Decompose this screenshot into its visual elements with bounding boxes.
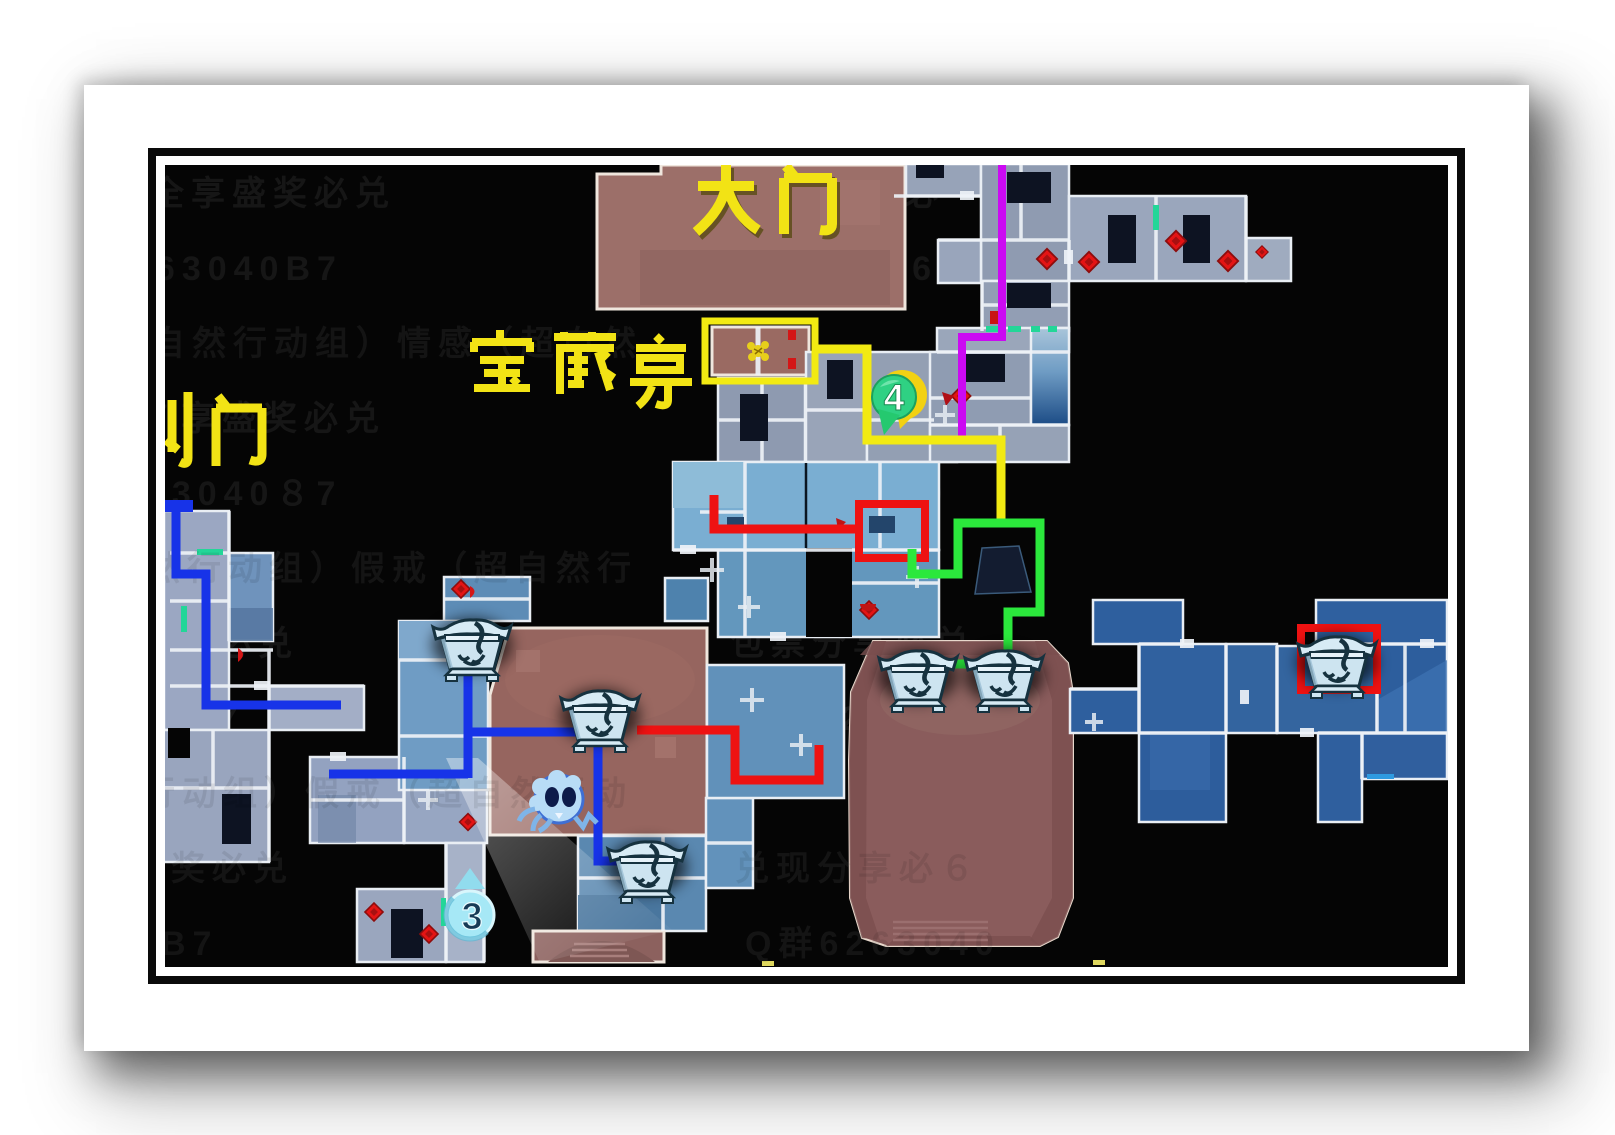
svg-text:０B7: ０B7 bbox=[165, 925, 218, 963]
svg-text:７享盛奖必兑: ７享盛奖必兑 bbox=[165, 400, 386, 438]
svg-text:自然行动组）假戒（超自然行: 自然行动组）假戒（超自然行 bbox=[165, 549, 638, 588]
svg-text:3: 3 bbox=[461, 896, 482, 938]
svg-text:全享盛奖必兑: 全享盛奖必兑 bbox=[165, 174, 396, 213]
svg-text:4: 4 bbox=[884, 377, 905, 418]
svg-text:７奖必兑: ７奖必兑 bbox=[165, 850, 294, 888]
svg-text:Q群6263040: Q群6263040 bbox=[745, 925, 1001, 963]
svg-text:263040B7: 263040B7 bbox=[165, 250, 343, 288]
svg-text:兑现分享必６: 兑现分享必６ bbox=[735, 850, 981, 888]
